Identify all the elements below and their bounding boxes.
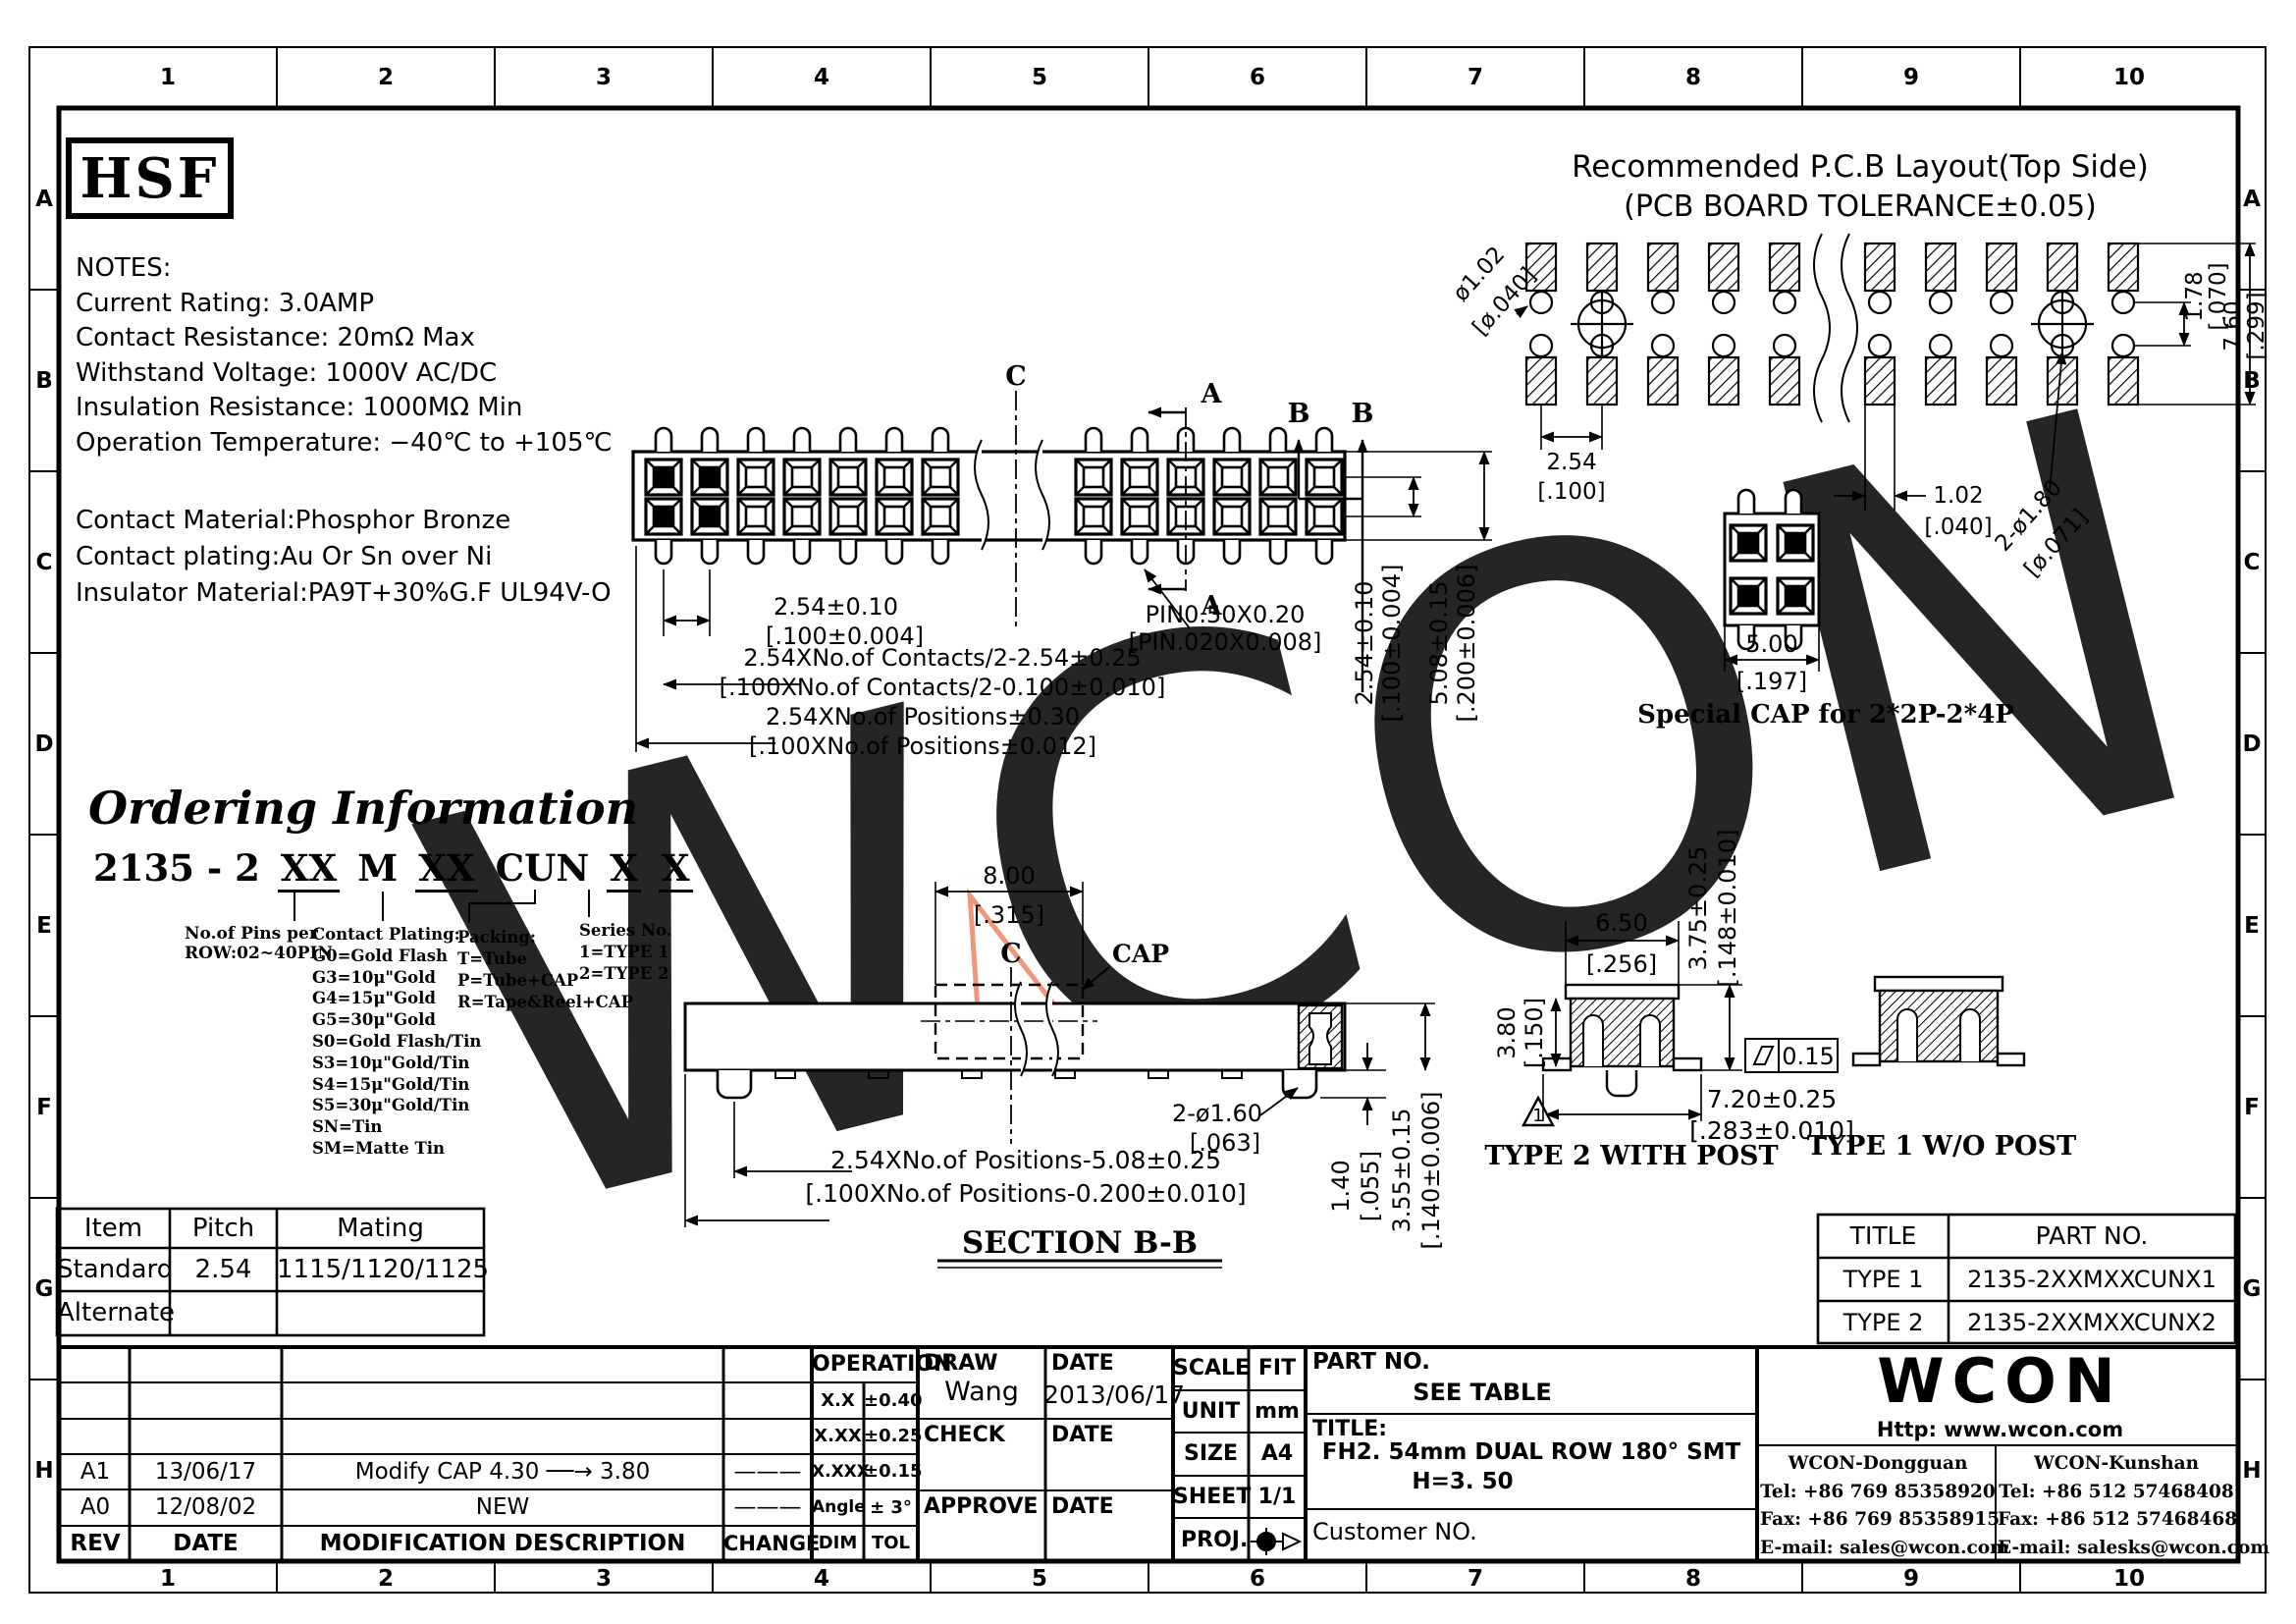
zone-col: 5 (1032, 1566, 1047, 1592)
office-name: WCON-Kunshan (1998, 1450, 2235, 1479)
zone-row: G (2243, 1276, 2262, 1302)
section-bb-title: SECTION B-B (962, 1225, 1198, 1261)
rev-header: MODIFICATION DESCRIPTION (282, 1526, 723, 1561)
zone-row: H (2242, 1458, 2261, 1484)
pcb-subtitle: (PCB BOARD TOLERANCE±0.05) (1517, 189, 2204, 224)
tol-cell: DIM (812, 1526, 864, 1561)
plating-option: G0=Gold Flash (312, 946, 481, 967)
rev-cell: A0 (61, 1489, 130, 1526)
dim-label: [.100XNo.of Positions±0.012] (749, 732, 1096, 760)
dim-label: 2.54±0.10 (1351, 581, 1378, 706)
mating-header-mating: Mating (277, 1209, 484, 1248)
dim-label: 7.20±0.25 (1707, 1085, 1837, 1113)
office-tel: Tel: +86 512 57468408 (1998, 1479, 2235, 1507)
rev-cell: A1 (61, 1454, 130, 1489)
rev-cell: 12/08/02 (130, 1489, 282, 1526)
plating-option: G3=10μ"Gold (312, 967, 481, 989)
zone-row: E (2244, 913, 2260, 939)
revision-marker: 1 (1532, 1106, 1543, 1126)
special-cap-caption: Special CAP for 2*2P-2*4P (1637, 700, 2014, 730)
date-label: DATE (1051, 1494, 1114, 1519)
pin-number: 3 (704, 509, 716, 528)
dim-label: 5.00 (1745, 630, 1797, 658)
material-line: Contact plating:Au Or Sn over Ni (76, 542, 612, 571)
draw-label: DRAW (924, 1351, 998, 1376)
zone-row: D (2242, 731, 2261, 757)
series-title: Series No. (579, 920, 671, 942)
tol-cell: TOL (864, 1526, 918, 1561)
unit-label: UNIT (1173, 1390, 1249, 1433)
pin-number: 2 (1742, 535, 1754, 555)
title-label: TITLE: (1312, 1417, 1387, 1441)
scale-value: FIT (1249, 1347, 1306, 1390)
rev-cell: ——— (723, 1489, 812, 1526)
zone-row: F (2244, 1095, 2260, 1120)
material-line: Insulator Material:PA9T+30%G.F UL94V-O (76, 578, 612, 608)
dim-label: 1.02 (1933, 483, 1983, 509)
section-label-c: C (1005, 361, 1027, 392)
rev-cell: NEW (282, 1489, 723, 1526)
zone-col: 2 (378, 1566, 394, 1592)
pcb-layout-heading: Recommended P.C.B Layout(Top Side) (PCB … (1517, 149, 2204, 224)
rev-header: DATE (130, 1526, 282, 1561)
office-fax: Fax: +86 769 85358915 (1760, 1506, 1996, 1535)
section-label-b: B (1352, 399, 1374, 429)
plating-option: G4=15μ"Gold (312, 988, 481, 1009)
dim-label: 2.54XNo.of Positions-5.08±0.25 (830, 1146, 1221, 1174)
plating-option: S3=10μ"Gold/Tin (312, 1053, 481, 1074)
ordering-plating-column: Contact Plating: G0=Gold Flash G3=10μ"Go… (312, 924, 481, 1160)
proj-label: PROJ. (1181, 1528, 1248, 1552)
zone-col: 7 (1468, 65, 1483, 90)
part-cell-number: 2135-2XXMXXCUNX1 (1949, 1258, 2235, 1301)
dim-label: [.040] (1924, 514, 1992, 540)
hsf-logo: HSF (66, 137, 234, 219)
pn-pins: XX (278, 846, 340, 893)
dim-label: [.150] (1521, 998, 1548, 1068)
notes-block: NOTES: Current Rating: 3.0AMP Contact Re… (76, 253, 613, 458)
plating-option: SN=Tin (312, 1116, 481, 1138)
zone-row: G (35, 1276, 54, 1302)
rev-header: REV (61, 1526, 130, 1561)
plating-option: S4=15μ"Gold/Tin (312, 1074, 481, 1096)
type2-caption: TYPE 2 WITH POST (1484, 1141, 1778, 1171)
approve-label: APPROVE (924, 1494, 1038, 1519)
part-no-value: SEE TABLE (1369, 1379, 1595, 1406)
pins-note-line: No.of Pins per (185, 924, 306, 944)
section-label-c: C (1000, 939, 1022, 969)
scale-label: SCALE (1173, 1347, 1249, 1390)
dim-label: [.100XNo.of Positions-0.200±0.010] (805, 1179, 1246, 1208)
office-email: E-mail: sales@wcon.com (1760, 1535, 1996, 1563)
pin-number: 1 (1742, 588, 1754, 608)
dim-label: 7.60 (2220, 300, 2246, 351)
series-option: 2=TYPE 2 (579, 963, 671, 985)
pin-number: 3 (1789, 588, 1801, 608)
dim-label: 2.54±0.10 (774, 593, 898, 621)
mating-header-item: Item (57, 1209, 170, 1248)
tol-cell: Angle (812, 1489, 864, 1526)
pcb-title: Recommended P.C.B Layout(Top Side) (1517, 149, 2204, 185)
zone-row: D (34, 731, 53, 757)
zone-col: 9 (1903, 1566, 1919, 1592)
pn-prefix: 2135 - 2 (93, 846, 260, 890)
dim-label: [.256] (1586, 950, 1657, 978)
notes-title: NOTES: (76, 253, 613, 283)
tol-cell: X.X (812, 1382, 864, 1419)
ordering-title: Ordering Information (88, 782, 638, 835)
dim-label: [.148±0.010] (1714, 830, 1741, 988)
zone-col: 2 (378, 65, 394, 90)
dim-label: 3.55±0.15 (1388, 1109, 1415, 1233)
zone-col: 10 (2113, 1566, 2145, 1592)
zone-row: H (34, 1458, 53, 1484)
zone-col: 4 (814, 1566, 829, 1592)
pin-number: 1 (658, 509, 669, 528)
dim-label: 3.75±0.25 (1684, 846, 1712, 971)
plating-option: SM=Matte Tin (312, 1138, 481, 1160)
mating-cell: Standard (57, 1248, 170, 1291)
rev-cell: ——— (723, 1454, 812, 1489)
zone-col: 3 (596, 1566, 612, 1592)
dim-label: PIN0.50X0.20 (1146, 601, 1306, 628)
type1-view (1853, 977, 2024, 1065)
pn-plating: XX (415, 846, 477, 893)
dim-label: 3.80 (1493, 1006, 1521, 1058)
unit-value: mm (1249, 1390, 1306, 1433)
mating-cell: Alternate (57, 1291, 170, 1334)
dim-label: 1.78 (2182, 271, 2208, 321)
zone-row: C (2244, 550, 2261, 575)
pin-number: 4 (1789, 535, 1801, 555)
draw-date: 2013/06/17 (1043, 1380, 1173, 1409)
note-line: Withstand Voltage: 1000V AC/DC (76, 358, 613, 388)
office-email: E-mail: salesks@wcon.com (1998, 1535, 2235, 1563)
dim-label: [.299] (2244, 292, 2269, 359)
zone-col: 6 (1250, 1566, 1265, 1592)
section-label-b: B (1288, 399, 1310, 429)
customer-label: Customer NO. (1312, 1518, 1477, 1545)
wcon-url: Http: www.wcon.com (1762, 1418, 2238, 1441)
rev-cell: 13/06/17 (130, 1454, 282, 1489)
dim-label: 2-ø1.60 (1172, 1100, 1262, 1127)
plating-option: G5=30μ"Gold (312, 1009, 481, 1031)
wcon-logo: WCON (1762, 1347, 2238, 1416)
pn-packing: X (607, 846, 641, 893)
wcon-dongguan: WCON-Dongguan Tel: +86 769 85358920 Fax:… (1760, 1450, 1996, 1562)
size-label: SIZE (1173, 1433, 1249, 1476)
material-block: Contact Material:Phosphor Bronze Contact… (76, 506, 612, 608)
drawing-sheet: WCON 1 2 3 4 (0, 0, 2296, 1624)
dim-label: [.197] (1736, 668, 1807, 695)
zone-col: 6 (1250, 65, 1265, 90)
dim-label: [.100±0.004] (1378, 565, 1406, 723)
office-tel: Tel: +86 769 85358920 (1760, 1479, 1996, 1507)
zone-col: 4 (814, 65, 829, 90)
zone-row: B (35, 368, 53, 394)
dim-label: 5.08±0.15 (1425, 581, 1453, 706)
pin-number: 4 (704, 469, 716, 489)
sheet-value: 1/1 (1249, 1476, 1306, 1518)
dim-label: [.315] (974, 901, 1044, 929)
plating-title: Contact Plating: (312, 924, 481, 946)
zone-row: C (36, 550, 53, 575)
section-label-a: A (1201, 379, 1223, 409)
dim-label: 2.54XNo.of Positions±0.30 (766, 703, 1080, 731)
zone-row: F (36, 1095, 52, 1120)
mating-cell: 2.54 (170, 1248, 277, 1291)
pn-cun: CUN (496, 846, 590, 890)
part-header-partno: PART NO. (1949, 1215, 2235, 1258)
flatness-value: 0.15 (1782, 1043, 1834, 1070)
note-line: Contact Resistance: 20mΩ Max (76, 323, 613, 352)
sheet-label: SHEET (1173, 1476, 1249, 1518)
zone-col: 5 (1032, 65, 1047, 90)
zone-col: 8 (1685, 65, 1701, 90)
ordering-series-column: Series No. 1=TYPE 1 2=TYPE 2 (579, 920, 671, 985)
office-name: WCON-Dongguan (1760, 1450, 1996, 1479)
dim-label: 2.54 (1546, 450, 1596, 475)
pins-note-line: ROW:02~40PIN (185, 944, 306, 963)
dim-label: 2.54XNo.of Contacts/2-2.54±0.25 (743, 644, 1141, 672)
dim-label: 1.40 (1327, 1160, 1355, 1212)
title-line2: H=3. 50 (1315, 1469, 1610, 1494)
dim-label: 6.50 (1595, 909, 1647, 937)
pn-series: X (659, 846, 693, 893)
note-line: Insulation Resistance: 1000MΩ Min (76, 393, 613, 422)
part-cell-type: TYPE 2 (1818, 1301, 1949, 1344)
zone-row: A (35, 187, 53, 212)
tol-cell: ±0.40 (864, 1382, 918, 1419)
pn-m: M (357, 846, 398, 890)
packing-option: R=Tape&Reel+CAP (457, 992, 633, 1013)
part-no-label: PART NO. (1312, 1349, 1430, 1375)
zone-row: A (2243, 187, 2261, 212)
zone-row: E (36, 913, 52, 939)
wcon-kunshan: WCON-Kunshan Tel: +86 512 57468408 Fax: … (1998, 1450, 2235, 1562)
rev-header: CHANGE (723, 1526, 812, 1561)
zone-col: 1 (160, 65, 176, 90)
dim-label: [.140±0.006] (1417, 1092, 1445, 1250)
ordering-part-number: 2135 - 2XXMXXCUNXX (93, 846, 711, 890)
tol-cell: ± 3° (864, 1489, 918, 1526)
title-line1: FH2. 54mm DUAL ROW 180° SMT (1315, 1439, 1747, 1465)
part-cell-number: 2135-2XXMXXCUNX2 (1949, 1301, 2235, 1344)
tol-cell: X.XX (812, 1419, 864, 1454)
pin-number: 2 (658, 469, 669, 489)
series-option: 1=TYPE 1 (579, 942, 671, 963)
zone-col: 10 (2113, 65, 2145, 90)
dim-label: [.100] (1537, 479, 1605, 505)
date-label: DATE (1051, 1423, 1114, 1447)
office-fax: Fax: +86 512 57468468 (1998, 1506, 2235, 1535)
dim-label: [.100XNo.of Contacts/2-0.100±0.010] (720, 674, 1166, 701)
zone-row: B (2243, 368, 2261, 394)
dim-label: [.055] (1357, 1151, 1384, 1221)
dim-label: [.063] (1190, 1129, 1260, 1157)
zone-col: 7 (1468, 1566, 1483, 1592)
rev-cell: Modify CAP 4.30 ──→ 3.80 (282, 1454, 723, 1489)
plating-option: S5=30μ"Gold/Tin (312, 1095, 481, 1116)
zone-col: 9 (1903, 65, 1919, 90)
cap-label: CAP (1112, 940, 1169, 968)
check-label: CHECK (924, 1423, 1005, 1447)
dim-label: [PIN.020X0.008] (1129, 628, 1322, 656)
draw-name: Wang (918, 1377, 1045, 1407)
size-value: A4 (1249, 1433, 1306, 1476)
plating-option: S0=Gold Flash/Tin (312, 1031, 481, 1053)
material-line: Contact Material:Phosphor Bronze (76, 506, 612, 535)
date-label: DATE (1051, 1351, 1114, 1376)
note-line: Operation Temperature: −40℃ to +105℃ (76, 428, 613, 458)
zone-col: 8 (1685, 1566, 1701, 1592)
mating-header-pitch: Pitch (170, 1209, 277, 1248)
tol-cell: ±0.25 (864, 1419, 918, 1454)
type1-caption: TYPE 1 W/O POST (1807, 1131, 2076, 1162)
projection-symbol (1251, 1528, 1300, 1555)
zone-col: 1 (160, 1566, 176, 1592)
mating-cell: 1115/1120/1125 (277, 1248, 484, 1291)
tolerance-header: OPERATION (812, 1347, 918, 1382)
ordering-pins-note: No.of Pins per ROW:02~40PIN (185, 924, 306, 963)
note-line: Current Rating: 3.0AMP (76, 289, 613, 318)
tol-cell: ±0.15 (864, 1454, 918, 1489)
tol-cell: X.XXX (812, 1454, 864, 1489)
dim-label: 8.00 (983, 862, 1035, 890)
part-cell-type: TYPE 1 (1818, 1258, 1949, 1301)
zone-col: 3 (596, 65, 612, 90)
dim-label: [.200±0.006] (1453, 565, 1480, 723)
part-header-title: TITLE (1818, 1215, 1949, 1258)
